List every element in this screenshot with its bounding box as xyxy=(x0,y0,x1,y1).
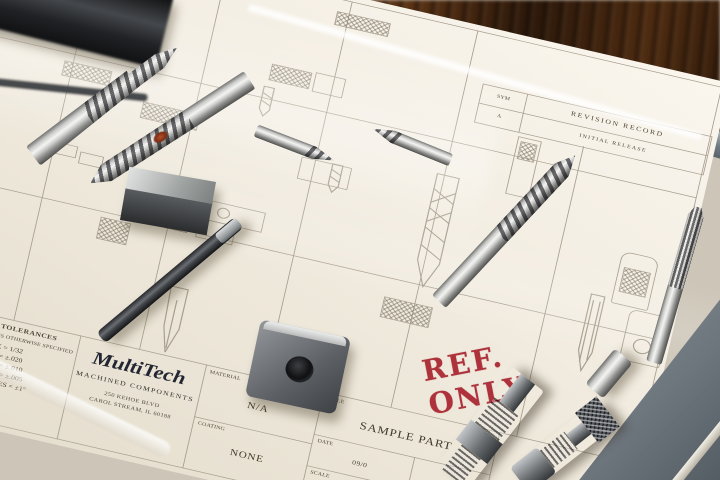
engineering-drawing-sheet: SYM A REVISION RECORD INITIAL RELEASE DI… xyxy=(0,0,720,480)
machining-tools-photo: SYM A REVISION RECORD INITIAL RELEASE DI… xyxy=(0,0,720,480)
revision-sym-label: SYM xyxy=(481,90,526,106)
part-hole xyxy=(283,354,316,385)
